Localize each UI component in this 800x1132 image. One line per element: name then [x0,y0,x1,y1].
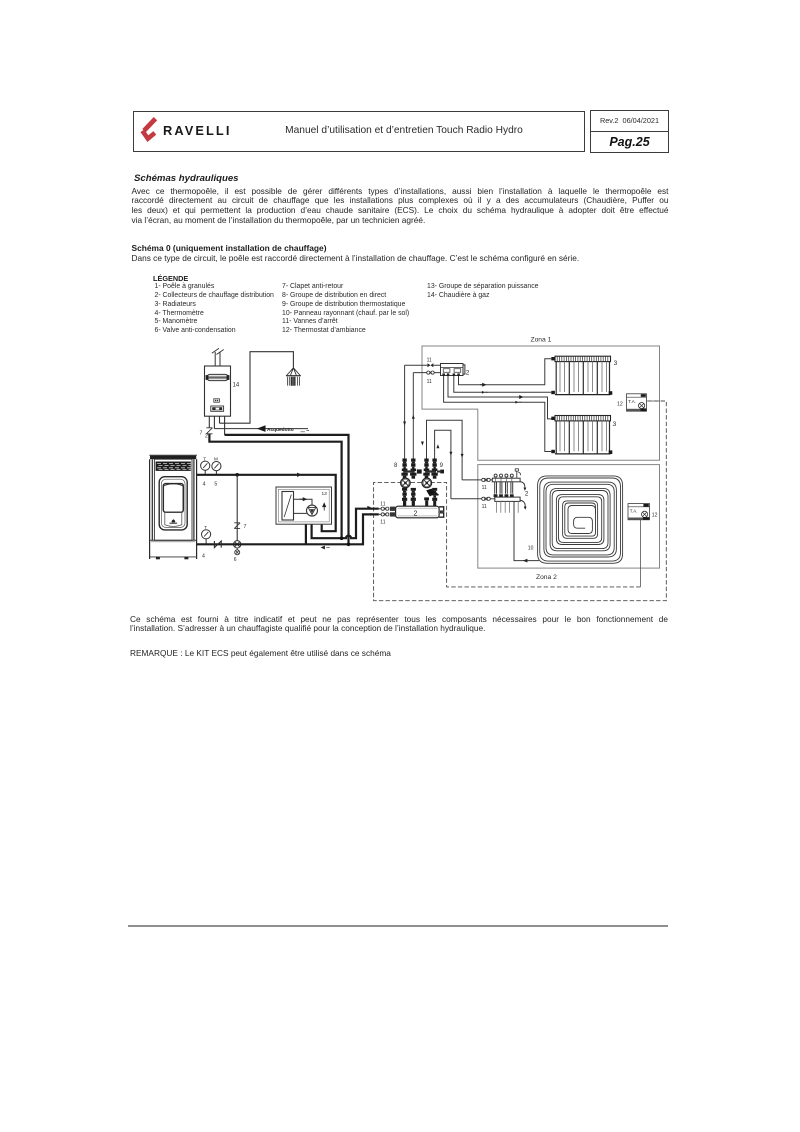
svg-text:T.A.: T.A. [630,508,638,513]
svg-text:6: 6 [234,557,237,563]
svg-text:3: 3 [614,360,618,367]
svg-text:14: 14 [233,383,240,389]
svg-text:2: 2 [466,369,470,376]
svg-text:7: 7 [244,524,247,530]
svg-text:11: 11 [482,504,487,510]
svg-text:12: 12 [617,401,623,407]
svg-text:12: 12 [652,513,658,519]
svg-text:5: 5 [214,482,217,488]
svg-text:13: 13 [322,491,328,497]
svg-text:T: T [203,456,206,461]
svg-text:11: 11 [482,485,487,491]
svg-text:11: 11 [427,379,432,385]
svg-text:2: 2 [205,434,208,440]
svg-text:2: 2 [525,490,529,497]
svg-text:M: M [214,456,218,461]
svg-text:2: 2 [414,511,418,518]
svg-text:9: 9 [440,463,444,469]
svg-text:11: 11 [380,501,385,507]
svg-text:11: 11 [427,358,432,364]
svg-text:Zona 2: Zona 2 [536,574,557,581]
svg-text:11: 11 [380,519,385,525]
svg-text:4: 4 [202,554,205,560]
svg-text:T: T [204,525,207,530]
svg-text:7: 7 [200,431,203,437]
svg-text:Acquedotto: Acquedotto [267,427,294,433]
svg-text:4: 4 [203,482,206,488]
svg-text:8: 8 [394,463,398,469]
svg-text:T.A.: T.A. [628,399,636,404]
svg-text:10: 10 [528,546,534,552]
svg-text:3: 3 [613,421,617,428]
svg-text:Zona 1: Zona 1 [531,337,552,344]
